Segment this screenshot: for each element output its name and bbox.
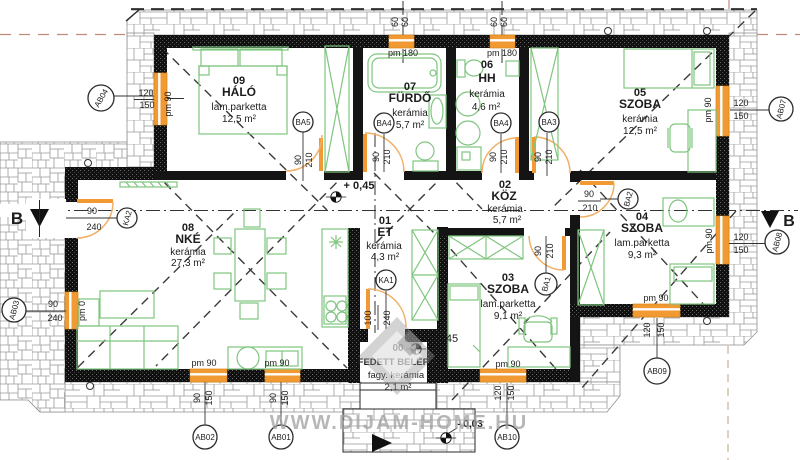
svg-text:AB09: AB09 <box>647 367 667 376</box>
svg-text:9,1 m²: 9,1 m² <box>494 311 523 322</box>
svg-text:pm 90: pm 90 <box>163 91 173 116</box>
svg-text:KÖZ: KÖZ <box>491 188 516 203</box>
svg-text:FÜRDŐ: FÜRDŐ <box>389 90 432 105</box>
svg-text:60: 60 <box>489 17 499 27</box>
svg-text:HH: HH <box>478 71 495 85</box>
svg-text:45: 45 <box>446 333 458 345</box>
svg-text:90: 90 <box>87 206 97 216</box>
svg-text:240: 240 <box>382 310 392 325</box>
svg-text:kerámia: kerámia <box>392 108 428 119</box>
svg-text:pm 90: pm 90 <box>191 358 216 368</box>
svg-text:BA4: BA4 <box>376 119 392 128</box>
svg-text:120: 120 <box>138 88 153 98</box>
svg-text:9,3 m²: 9,3 m² <box>628 250 657 261</box>
svg-text:120: 120 <box>642 322 652 337</box>
svg-text:5,7 m²: 5,7 m² <box>493 215 522 226</box>
svg-text:B: B <box>783 213 795 230</box>
svg-text:BA3: BA3 <box>541 118 557 127</box>
svg-text:210: 210 <box>499 149 509 164</box>
svg-text:27,3 m²: 27,3 m² <box>171 258 206 269</box>
svg-text:B: B <box>11 209 23 228</box>
svg-text:06: 06 <box>481 59 493 71</box>
svg-text:pm 90: pm 90 <box>704 228 714 253</box>
svg-text:90: 90 <box>533 246 543 256</box>
svg-text:lam.parketta: lam.parketta <box>480 299 535 310</box>
svg-text:120: 120 <box>493 385 503 400</box>
svg-text:240: 240 <box>47 313 62 323</box>
svg-text:5,7 m²: 5,7 m² <box>396 120 425 131</box>
svg-text:lam.parketta: lam.parketta <box>614 238 669 249</box>
svg-text:210: 210 <box>544 149 554 164</box>
svg-text:90: 90 <box>268 393 278 403</box>
svg-text:150: 150 <box>506 385 516 400</box>
svg-text:pm 0: pm 0 <box>77 301 87 321</box>
svg-text:BA5: BA5 <box>295 118 311 127</box>
svg-text:ET: ET <box>377 225 393 239</box>
svg-text:150: 150 <box>656 322 666 337</box>
svg-text:pm 90: pm 90 <box>264 358 289 368</box>
svg-text:150: 150 <box>733 245 748 255</box>
svg-text:kerámia: kerámia <box>622 114 658 125</box>
svg-text:HÁLÓ: HÁLÓ <box>222 84 256 99</box>
svg-text:WWW.DIJAM-HOME.HU: WWW.DIJAM-HOME.HU <box>270 412 528 434</box>
svg-text:120: 120 <box>733 98 748 108</box>
svg-text:BA4: BA4 <box>493 119 509 128</box>
svg-text:AB10: AB10 <box>497 433 517 442</box>
svg-text:150: 150 <box>139 100 154 110</box>
svg-text:pm 90: pm 90 <box>703 97 713 122</box>
svg-text:AB01: AB01 <box>271 433 291 442</box>
svg-text:240: 240 <box>86 222 101 232</box>
svg-text:AB02: AB02 <box>195 433 215 442</box>
svg-text:kerámia: kerámia <box>366 241 402 252</box>
svg-text:90: 90 <box>488 152 498 162</box>
svg-text:kerámia: kerámia <box>487 204 523 215</box>
svg-text:pm 180: pm 180 <box>388 48 418 58</box>
svg-text:210: 210 <box>304 152 314 167</box>
svg-text:pm 90: pm 90 <box>495 359 520 369</box>
svg-text:120: 120 <box>733 232 748 242</box>
svg-text:100: 100 <box>363 310 373 325</box>
svg-text:NKÉ: NKÉ <box>175 231 200 246</box>
svg-text:210: 210 <box>382 149 392 164</box>
svg-text:kerámia: kerámia <box>469 89 505 100</box>
svg-text:90: 90 <box>584 189 594 199</box>
svg-text:KA1: KA1 <box>378 276 394 285</box>
svg-text:4,6 m²: 4,6 m² <box>472 102 501 113</box>
svg-text:150: 150 <box>204 390 214 405</box>
svg-text:150: 150 <box>280 390 290 405</box>
svg-text:12,5 m²: 12,5 m² <box>623 126 658 137</box>
svg-text:150: 150 <box>733 111 748 121</box>
svg-text:+ 0,45: + 0,45 <box>344 180 375 192</box>
svg-text:90: 90 <box>371 152 381 162</box>
svg-text:kerámia: kerámia <box>170 247 206 258</box>
svg-text:90: 90 <box>48 299 58 309</box>
svg-text:pm 180: pm 180 <box>487 48 517 58</box>
svg-text:90: 90 <box>192 393 202 403</box>
svg-text:4,3 m²: 4,3 m² <box>371 252 400 263</box>
svg-text:90: 90 <box>533 152 543 162</box>
svg-text:SZOBA: SZOBA <box>487 282 529 296</box>
svg-text:60: 60 <box>400 17 410 27</box>
svg-text:pm 90: pm 90 <box>643 293 668 303</box>
svg-text:SZOBA: SZOBA <box>621 221 663 235</box>
svg-text:12,5 m²: 12,5 m² <box>222 114 257 125</box>
svg-text:210: 210 <box>582 203 597 213</box>
svg-text:60: 60 <box>390 17 400 27</box>
svg-text:SZOBA: SZOBA <box>619 97 661 111</box>
svg-text:210: 210 <box>545 243 555 258</box>
svg-text:60: 60 <box>499 17 509 27</box>
svg-text:lam.parketta: lam.parketta <box>211 102 266 113</box>
svg-text:90: 90 <box>293 155 303 165</box>
